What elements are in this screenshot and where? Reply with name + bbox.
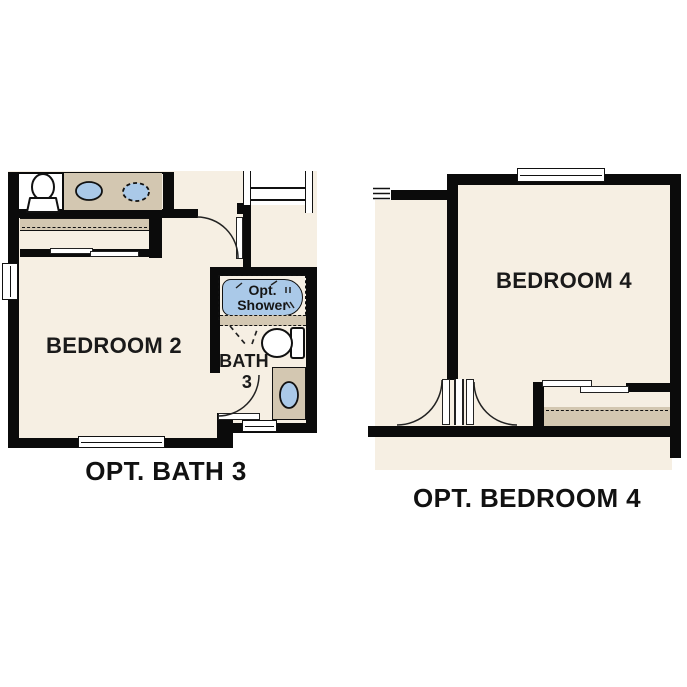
optional-wall-band: [220, 315, 306, 326]
door-leaf: [218, 413, 260, 420]
window-line: [81, 442, 162, 443]
wall: [368, 426, 672, 437]
sliding-door: [50, 248, 93, 254]
caption-opt-bath-3: OPT. BATH 3: [46, 456, 286, 487]
sliding-door: [580, 386, 629, 393]
closet-shelf: [20, 218, 149, 231]
door-leaf: [466, 379, 474, 425]
wall: [670, 174, 681, 458]
wall: [306, 267, 317, 433]
exterior-cutout: [233, 433, 317, 448]
wall: [243, 205, 251, 267]
stair-tread: [251, 199, 305, 201]
wall: [626, 383, 671, 392]
door-jamb-post: [454, 379, 464, 425]
wall: [163, 173, 174, 218]
wall: [533, 382, 544, 432]
door-leaf: [236, 217, 243, 259]
room-label-bath: BATH: [214, 351, 274, 372]
window: [517, 168, 605, 182]
room-label-bedroom2: BEDROOM 2: [34, 333, 194, 359]
stair-rail: [243, 171, 251, 205]
window: [2, 263, 18, 300]
room-label-bedroom4: BEDROOM 4: [464, 268, 664, 294]
stair-rail: [305, 171, 313, 213]
window-line: [520, 175, 602, 176]
stair-tread: [251, 187, 305, 189]
closet-rod-dashed-line: [546, 410, 668, 411]
sliding-door: [90, 251, 139, 257]
wall: [149, 218, 162, 258]
wall: [447, 200, 458, 380]
door-leaf: [442, 379, 450, 425]
shower-label-line1: Opt.: [249, 283, 277, 298]
door-threshold: [242, 420, 277, 432]
wall: [373, 190, 458, 200]
bathtub-shower-icon: Opt. Shower: [222, 279, 303, 316]
closet-rod-dashed-line: [22, 227, 147, 228]
threshold-line: [245, 426, 274, 427]
window: [78, 436, 165, 448]
floor-plan-image: Opt. Shower BEDROOM 2 BATH 3 OPT. BATH 3: [0, 0, 687, 687]
vanity-counter: [64, 173, 162, 210]
room-label-bath-number: 3: [214, 372, 280, 393]
caption-opt-bedroom-4: OPT. BEDROOM 4: [397, 483, 657, 514]
closet-shelf: [544, 407, 670, 426]
toilet-room-floor: [19, 174, 62, 209]
window-line: [10, 266, 11, 297]
shower-label-line2: Shower: [237, 298, 288, 313]
